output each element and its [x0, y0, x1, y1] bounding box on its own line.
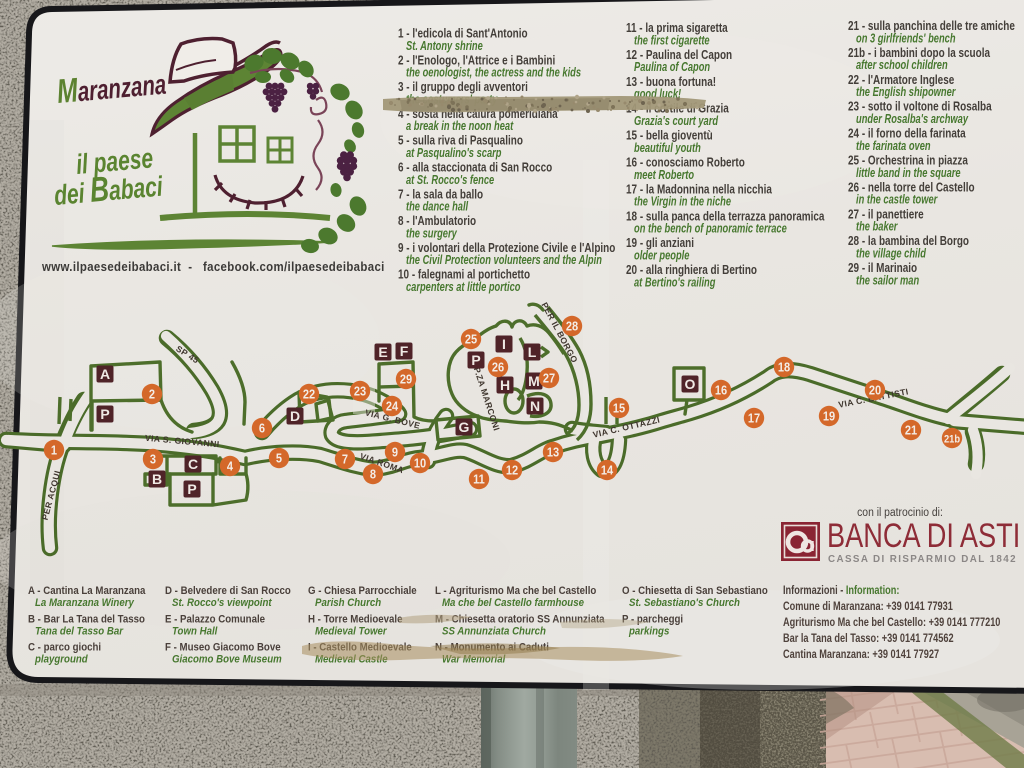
svg-text:6: 6 — [259, 421, 265, 436]
svg-text:at Bertino's railing: at Bertino's railing — [634, 276, 716, 290]
svg-text:16: 16 — [715, 383, 728, 398]
svg-text:St. Sebastiano's Church: St. Sebastiano's Church — [629, 598, 740, 610]
svg-text:St. Antony shrine: St. Antony shrine — [406, 40, 483, 54]
svg-text:the dance hall: the dance hall — [406, 200, 469, 214]
svg-text:the farinata oven: the farinata oven — [856, 140, 931, 154]
svg-text:on the bench of panoramic terr: on the bench of panoramic terrace — [634, 222, 787, 236]
svg-text:Parish Church: Parish Church — [315, 598, 381, 610]
svg-text:a break in the noon heat: a break in the noon heat — [406, 120, 514, 134]
svg-text:beautiful youth: beautiful youth — [634, 142, 701, 156]
svg-text:C - parco giochi: C - parco giochi — [28, 642, 101, 654]
svg-text:2: 2 — [149, 387, 155, 402]
svg-text:carpenters at little portico: carpenters at little portico — [406, 281, 521, 295]
svg-text:La Maranzana Winery: La Maranzana Winery — [35, 598, 135, 610]
svg-text:8: 8 — [370, 467, 376, 482]
svg-text:St. Rocco's viewpoint: St. Rocco's viewpoint — [172, 598, 272, 610]
svg-text:15: 15 — [613, 401, 626, 416]
svg-text:in the castle tower: in the castle tower — [856, 193, 938, 207]
svg-text:the English shipowner: the English shipowner — [856, 86, 956, 100]
svg-text:Grazia's court yard: Grazia's court yard — [634, 115, 718, 129]
svg-text:L: L — [528, 344, 537, 360]
svg-text:20: 20 — [869, 383, 882, 398]
svg-text:4: 4 — [227, 459, 233, 474]
svg-text:under Rosalba's archway: under Rosalba's archway — [856, 113, 969, 127]
svg-text:21b: 21b — [944, 434, 960, 446]
svg-text:SS Annunziata Church: SS Annunziata Church — [442, 626, 546, 638]
svg-text:the village child: the village child — [856, 247, 926, 261]
svg-text:I: I — [502, 336, 506, 352]
svg-text:B - Bar La Tana del Tasso: B - Bar La Tana del Tasso — [28, 614, 145, 626]
svg-text:the Civil Protection volunteer: the Civil Protection volunteers and the … — [406, 254, 602, 268]
svg-text:H: H — [500, 377, 510, 393]
svg-text:L - Agriturismo Ma che bel Cas: L - Agriturismo Ma che bel Castello — [435, 586, 596, 598]
svg-text:29: 29 — [400, 372, 413, 387]
svg-text:BANCA DI ASTI: BANCA DI ASTI — [827, 516, 1020, 555]
svg-text:older people: older people — [634, 249, 689, 263]
svg-text:25: 25 — [465, 332, 478, 347]
svg-text:26: 26 — [492, 360, 505, 375]
svg-text:H - Torre Medioevale: H - Torre Medioevale — [308, 614, 403, 626]
svg-text:N: N — [530, 398, 540, 414]
svg-text:21: 21 — [905, 423, 918, 438]
svg-text:Town Hall: Town Hall — [172, 626, 218, 638]
svg-text:the oenologist, the actress an: the oenologist, the actress and the kids — [406, 66, 581, 80]
svg-text:13: 13 — [547, 445, 560, 460]
svg-text:parkings: parkings — [628, 626, 669, 638]
svg-text:G: G — [459, 419, 470, 435]
svg-text:on 3 girlfriends' bench: on 3 girlfriends' bench — [856, 32, 956, 46]
svg-text:Giacomo Bove Museum: Giacomo Bove Museum — [172, 654, 282, 666]
svg-text:Ma che bel Castello farmhouse: Ma che bel Castello farmhouse — [442, 598, 584, 610]
svg-text:the baker: the baker — [856, 220, 898, 234]
svg-text:the surgery: the surgery — [406, 227, 457, 241]
svg-text:11: 11 — [473, 472, 485, 487]
svg-text:O: O — [685, 376, 696, 392]
svg-text:G - Chiesa Parrocchiale: G - Chiesa Parrocchiale — [308, 586, 417, 598]
svg-text:19: 19 — [823, 409, 836, 424]
svg-text:playground: playground — [34, 654, 88, 666]
svg-text:E - Palazzo Comunale: E - Palazzo Comunale — [165, 614, 265, 626]
svg-text:F - Museo Giacomo Bove: F - Museo Giacomo Bove — [165, 642, 281, 654]
svg-text:A: A — [100, 366, 110, 382]
svg-text:B: B — [152, 471, 162, 487]
svg-text:9: 9 — [392, 445, 398, 460]
svg-text:P: P — [471, 352, 480, 368]
svg-text:meet Roberto: meet Roberto — [634, 169, 694, 183]
svg-text:24: 24 — [386, 399, 399, 414]
svg-text:10: 10 — [414, 456, 427, 471]
svg-text:at Pasqualino's scarp: at Pasqualino's scarp — [406, 147, 502, 161]
svg-text:Cantina Maranzana: +39 0141 77: Cantina Maranzana: +39 0141 77927 — [783, 649, 939, 661]
svg-text:22: 22 — [303, 387, 316, 402]
svg-text:after school children: after school children — [856, 59, 948, 73]
svg-text:D: D — [290, 408, 300, 424]
svg-text:M: M — [528, 373, 540, 389]
svg-text:the Virgin in the niche: the Virgin in the niche — [634, 195, 731, 209]
svg-text:12: 12 — [506, 463, 519, 478]
svg-text:17: 17 — [748, 411, 761, 426]
svg-text:14: 14 — [601, 463, 614, 478]
svg-text:1: 1 — [51, 443, 57, 458]
svg-text:27: 27 — [543, 371, 556, 386]
svg-text:23: 23 — [354, 384, 367, 399]
svg-text:7: 7 — [342, 452, 348, 467]
svg-text:18: 18 — [778, 360, 791, 375]
svg-text:Medieval Tower: Medieval Tower — [315, 626, 388, 638]
svg-text:Agriturismo Ma che bel Castell: Agriturismo Ma che bel Castello: +39 014… — [783, 617, 1001, 629]
svg-text:D - Belvedere di San Rocco: D - Belvedere di San Rocco — [165, 586, 291, 598]
svg-text:at St. Rocco's fence: at St. Rocco's fence — [406, 174, 494, 188]
svg-text:28: 28 — [566, 319, 579, 334]
svg-text:little band in the square: little band in the square — [856, 167, 961, 181]
svg-text:O - Chiesetta di San Sebastian: O - Chiesetta di San Sebastiano — [622, 586, 768, 598]
svg-text:Comune di Maranzana: +39 0141: Comune di Maranzana: +39 0141 77931 — [783, 601, 953, 613]
svg-text:Informazioni - Information:: Informazioni - Information: — [783, 585, 899, 597]
svg-text:P: P — [187, 481, 196, 497]
svg-text:the first cigarette: the first cigarette — [634, 34, 710, 48]
svg-text:C: C — [188, 456, 198, 472]
svg-text:P: P — [100, 406, 109, 422]
svg-text:Tana del Tasso Bar: Tana del Tasso Bar — [35, 626, 124, 638]
svg-text:CASSA DI RISPARMIO DAL 1842: CASSA DI RISPARMIO DAL 1842 — [828, 554, 1017, 565]
svg-text:A - Cantina La Maranzana: A - Cantina La Maranzana — [28, 586, 146, 598]
svg-text:E: E — [378, 344, 387, 360]
svg-text:the sailor man: the sailor man — [856, 274, 919, 288]
svg-text:3: 3 — [150, 452, 156, 467]
svg-text:www.ilpaesedeibabaci.it - f: www.ilpaesedeibabaci.it - facebook.com/i… — [41, 259, 385, 274]
svg-text:5: 5 — [276, 451, 282, 466]
svg-text:Bar la Tana del Tasso: +39 014: Bar la Tana del Tasso: +39 0141 774562 — [783, 633, 954, 645]
svg-text:F: F — [400, 343, 409, 359]
svg-text:Paulina of Capon: Paulina of Capon — [634, 61, 710, 75]
